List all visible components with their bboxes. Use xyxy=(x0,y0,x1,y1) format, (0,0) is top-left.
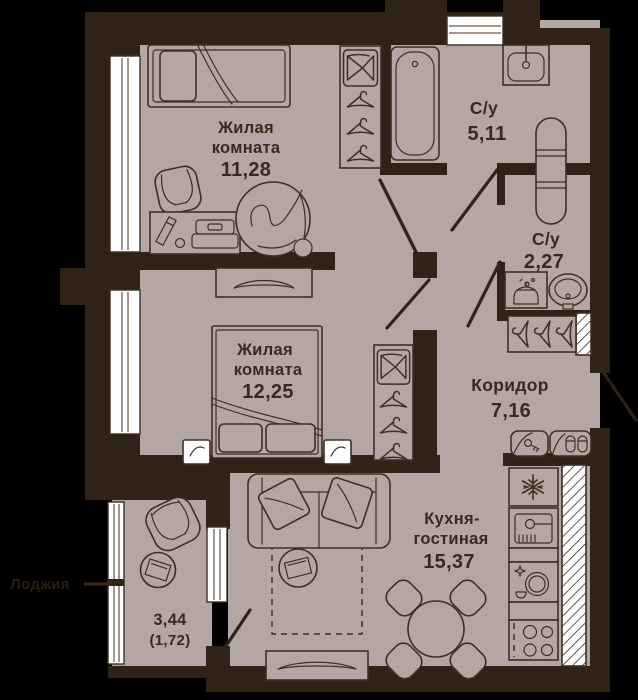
edge-label: Лоджия xyxy=(10,576,69,593)
wardrobe-icon xyxy=(340,46,381,168)
nightstand-icon xyxy=(324,440,351,464)
bedroom2-area: 12,25 xyxy=(242,381,294,403)
water-heater-icon xyxy=(536,118,566,224)
corridor-name: Коридор xyxy=(471,375,548,395)
window-balcony-block xyxy=(207,527,227,602)
sofa-icon xyxy=(248,474,390,548)
floor-plan-svg: Жилая комната 11,28 С/у 5,11 С/у 2,27 Жи… xyxy=(0,0,638,700)
tv-stand-icon xyxy=(266,651,368,680)
oven-icon xyxy=(509,508,558,548)
window-bedroom2 xyxy=(110,290,140,434)
laptop-icon xyxy=(192,220,238,248)
bedroom2-name-line2: комната xyxy=(234,361,303,379)
bathroom1-area: 5,11 xyxy=(467,123,506,145)
coat-rack xyxy=(508,316,576,352)
dining-table-icon xyxy=(408,601,464,657)
dresser-icon xyxy=(216,268,312,297)
bedroom1-name-line2: комната xyxy=(212,139,281,157)
pouf-icon xyxy=(236,182,312,257)
single-bed-icon xyxy=(148,45,290,107)
wardrobe-icon xyxy=(374,345,413,460)
key-shelf-icon xyxy=(511,431,548,456)
pillow-icon xyxy=(266,424,315,452)
desk-chair-icon xyxy=(153,164,203,216)
kitchen-appliances xyxy=(509,468,558,660)
side-table-icon xyxy=(141,553,176,588)
door-entrance xyxy=(603,372,636,420)
desk-icon xyxy=(150,212,240,254)
loggia-area: 3,44 xyxy=(153,611,187,629)
bedroom1-area: 11,28 xyxy=(221,159,271,181)
loggia-area-reduced: (1,72) xyxy=(150,632,191,649)
bathroom2-name: С/у xyxy=(532,229,560,249)
bathroom2-fixtures xyxy=(505,272,587,309)
pillow-icon xyxy=(160,51,196,101)
nightstand-icon xyxy=(183,440,210,464)
bedroom2-name-line1: Жилая xyxy=(236,341,293,359)
bathroom2-area: 2,27 xyxy=(524,251,564,273)
bathroom1-name: С/у xyxy=(470,98,498,118)
washing-machine-icon xyxy=(505,272,547,308)
cooktop-icon xyxy=(509,620,558,660)
counter-segment xyxy=(509,548,558,562)
kitchen-name-line1: Кухня- xyxy=(424,510,480,528)
kitchen-name-line2: гостиная xyxy=(413,530,488,548)
window-bedroom1 xyxy=(110,56,140,252)
dishwasher-icon xyxy=(509,562,558,602)
sink-icon xyxy=(503,45,549,85)
fridge-icon xyxy=(509,468,558,506)
shoe-cabinet-icon xyxy=(550,431,591,456)
window-bathroom xyxy=(447,16,503,45)
vent-shaft-corridor xyxy=(576,313,591,355)
corridor-area: 7,16 xyxy=(491,400,531,422)
bathtub-icon xyxy=(391,47,439,160)
coffee-table-icon xyxy=(279,549,317,587)
kitchen-area: 15,37 xyxy=(423,551,475,573)
vent-shaft-kitchen xyxy=(562,465,586,666)
counter-segment xyxy=(509,602,558,620)
bedroom1-name-line1: Жилая xyxy=(217,119,274,137)
pillow-icon xyxy=(219,424,262,452)
floor-plan: Жилая комната 11,28 С/у 5,11 С/у 2,27 Жи… xyxy=(0,0,638,700)
cup-icon xyxy=(176,239,185,248)
